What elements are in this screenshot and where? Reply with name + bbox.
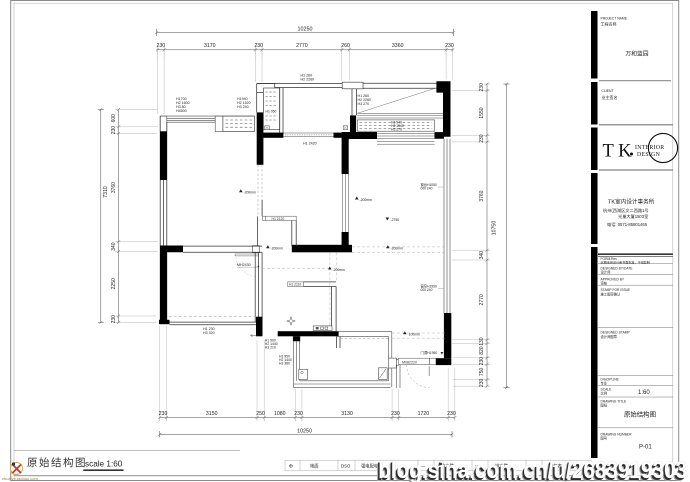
svg-text:1:60: 1:60 bbox=[638, 390, 650, 396]
svg-text:-200mm: -200mm bbox=[391, 247, 404, 251]
svg-text:230: 230 bbox=[479, 134, 485, 143]
svg-text:130: 130 bbox=[479, 337, 485, 346]
svg-text:750: 750 bbox=[479, 368, 485, 377]
svg-text:此图未经设计者书面批准，不得复制: 此图未经设计者书面批准，不得复制 bbox=[601, 259, 651, 264]
svg-text:杭州(西湖区文二西路1号: 杭州(西湖区文二西路1号 bbox=[603, 207, 649, 214]
svg-text:3360: 3360 bbox=[392, 43, 404, 49]
svg-text:P-01: P-01 bbox=[639, 445, 652, 451]
svg-text:施工图审确认: 施工图审确认 bbox=[601, 292, 621, 297]
svg-text:340: 340 bbox=[479, 251, 485, 260]
svg-text:H3 240: H3 240 bbox=[237, 105, 249, 109]
svg-text:H4500: H4500 bbox=[176, 109, 187, 113]
svg-text:STAMP FOR ISSUE: STAMP FOR ISSUE bbox=[601, 288, 632, 292]
svg-text:230: 230 bbox=[391, 411, 400, 417]
svg-text:比例: 比例 bbox=[601, 391, 608, 396]
svg-text:1080: 1080 bbox=[274, 411, 286, 417]
svg-text:H3 320: H3 320 bbox=[203, 331, 215, 335]
svg-text:3130: 3130 bbox=[341, 411, 353, 417]
svg-text:原始结构图: 原始结构图 bbox=[27, 456, 87, 469]
svg-text:340: 340 bbox=[111, 242, 117, 251]
svg-text:blog.sina.com.cn/u/2683919303: blog.sina.com.cn/u/2683919303 bbox=[378, 457, 687, 482]
svg-text:3170: 3170 bbox=[204, 43, 216, 49]
svg-text:-100mm: -100mm bbox=[408, 333, 421, 337]
svg-text:工程名称: 工程名称 bbox=[601, 21, 617, 27]
svg-text:H1 2120: H1 2120 bbox=[272, 217, 285, 221]
svg-text:地面: 地面 bbox=[310, 462, 319, 469]
svg-text:H1 050: H1 050 bbox=[266, 110, 277, 114]
svg-text:230: 230 bbox=[479, 379, 485, 388]
svg-text:230: 230 bbox=[111, 126, 117, 135]
svg-text:3760: 3760 bbox=[111, 182, 117, 193]
svg-text:10750: 10750 bbox=[492, 221, 498, 236]
svg-text:万和蓝园: 万和蓝园 bbox=[625, 50, 648, 58]
svg-text:MH2430: MH2430 bbox=[237, 263, 251, 267]
svg-text:H3 210: H3 210 bbox=[265, 346, 276, 350]
svg-text:-200mm: -200mm bbox=[271, 247, 284, 251]
svg-text:zhuaiye.taobao.com: zhuaiye.taobao.com bbox=[2, 476, 38, 481]
svg-text:230: 230 bbox=[111, 315, 117, 324]
svg-text:-2750: -2750 bbox=[391, 218, 400, 222]
svg-text:230: 230 bbox=[447, 411, 456, 417]
svg-text:820: 820 bbox=[479, 346, 485, 355]
svg-text:1550: 1550 bbox=[479, 107, 485, 118]
svg-text:10250: 10250 bbox=[297, 428, 312, 434]
svg-text:2250: 2250 bbox=[111, 278, 117, 289]
svg-text:PROJECT NAME: PROJECT NAME bbox=[601, 17, 628, 21]
svg-text:-200mm: -200mm bbox=[360, 198, 373, 202]
svg-text:审核: 审核 bbox=[601, 281, 608, 286]
svg-text:DSO: DSO bbox=[341, 463, 351, 468]
svg-text:250: 250 bbox=[256, 411, 265, 417]
svg-text:M082220: M082220 bbox=[402, 360, 417, 364]
svg-text:7310: 7310 bbox=[103, 186, 109, 198]
svg-text:门洞H1950: 门洞H1950 bbox=[421, 350, 438, 355]
svg-text:600: 600 bbox=[111, 114, 117, 123]
svg-text:H3 270: H3 270 bbox=[391, 128, 402, 132]
svg-text:H2 2260: H2 2260 bbox=[301, 77, 315, 81]
svg-text:2770: 2770 bbox=[479, 294, 485, 305]
svg-text:scale 1:60: scale 1:60 bbox=[85, 460, 123, 469]
svg-text:图纸: 图纸 bbox=[601, 403, 608, 408]
svg-text:230: 230 bbox=[156, 43, 165, 49]
svg-text:230: 230 bbox=[445, 43, 454, 49]
svg-text:专业: 专业 bbox=[601, 381, 608, 386]
svg-text:230: 230 bbox=[479, 357, 485, 366]
svg-text:-200mm: -200mm bbox=[333, 268, 346, 272]
svg-text:电话: 0571-85801465: 电话: 0571-85801465 bbox=[607, 221, 648, 228]
svg-text:T K: T K bbox=[603, 142, 633, 162]
svg-text:INTERIOR: INTERIOR bbox=[635, 145, 664, 151]
svg-text:260: 260 bbox=[341, 43, 350, 49]
svg-text:H3 270: H3 270 bbox=[358, 102, 370, 106]
svg-text:TK室内设计事务所: TK室内设计事务所 bbox=[608, 198, 655, 206]
svg-text:DESIGN: DESIGN bbox=[637, 152, 661, 158]
svg-text:H3 380: H3 380 bbox=[279, 362, 290, 366]
svg-text:000 240: 000 240 bbox=[421, 187, 433, 191]
svg-text:CLIENT: CLIENT bbox=[602, 89, 614, 93]
svg-text:230: 230 bbox=[254, 43, 263, 49]
svg-text:230: 230 bbox=[479, 83, 485, 92]
svg-text:230: 230 bbox=[294, 411, 303, 417]
svg-text:10250: 10250 bbox=[298, 27, 313, 33]
svg-text:原始结构图: 原始结构图 bbox=[624, 410, 656, 419]
svg-text:3150: 3150 bbox=[206, 411, 218, 417]
svg-text:000 240: 000 240 bbox=[421, 288, 433, 292]
svg-text:2770: 2770 bbox=[296, 43, 308, 49]
svg-text:-200mm: -200mm bbox=[244, 191, 257, 195]
svg-text:✠: ✠ bbox=[289, 463, 293, 468]
svg-text:设计师: 设计师 bbox=[601, 270, 612, 275]
svg-text:H1 2110: H1 2110 bbox=[289, 283, 301, 287]
svg-text:H1 2420: H1 2420 bbox=[303, 142, 317, 146]
svg-text:3760: 3760 bbox=[479, 190, 485, 201]
svg-text:光巢大厦1503室: 光巢大厦1503室 bbox=[618, 213, 648, 220]
svg-text:1720: 1720 bbox=[418, 411, 430, 417]
svg-text:图号: 图号 bbox=[601, 436, 608, 441]
svg-text:设计师图章: 设计师图章 bbox=[601, 334, 618, 339]
svg-text:230: 230 bbox=[159, 411, 168, 417]
svg-text:业主签名: 业主签名 bbox=[602, 94, 618, 100]
